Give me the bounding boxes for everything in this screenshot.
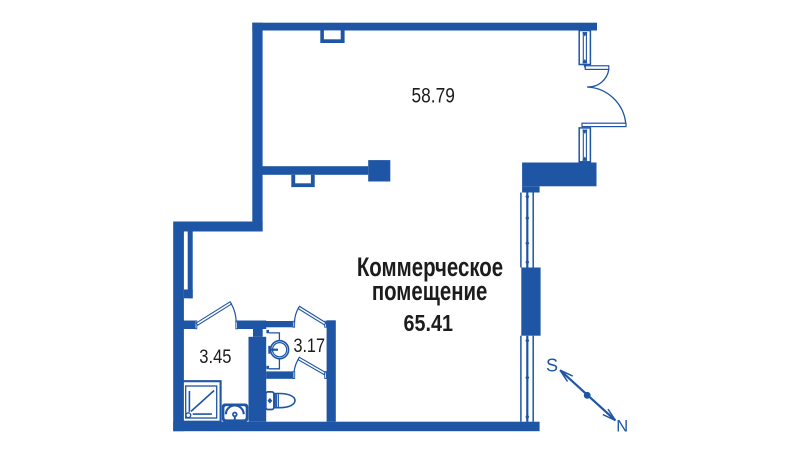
svg-text:3.17: 3.17 xyxy=(293,335,325,357)
svg-text:S: S xyxy=(546,355,558,375)
svg-text:65.41: 65.41 xyxy=(404,310,454,336)
svg-text:58.79: 58.79 xyxy=(412,84,455,107)
svg-text:3.45: 3.45 xyxy=(199,346,231,368)
svg-text:помещение: помещение xyxy=(372,276,488,306)
svg-text:N: N xyxy=(616,418,628,436)
